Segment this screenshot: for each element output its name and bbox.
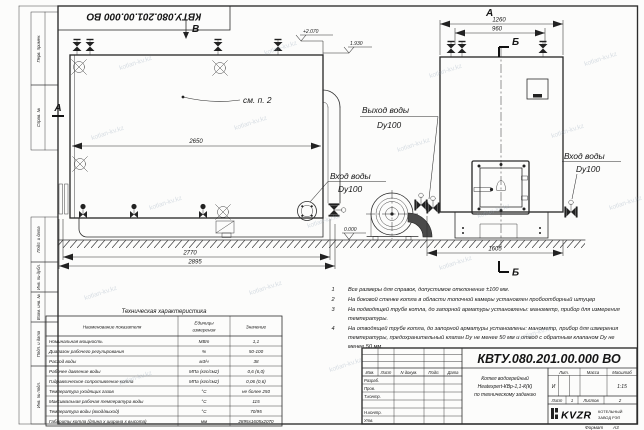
svg-text:мм: мм (201, 419, 208, 424)
svg-text:Dy100: Dy100 (338, 184, 363, 194)
air-valve-icon (447, 42, 456, 58)
svg-text:Вход воды: Вход воды (330, 171, 371, 181)
svg-text:Температура уходящих газов: Температура уходящих газов (49, 389, 114, 394)
svg-text:kotlan-kv.kz: kotlan-kv.kz (118, 55, 152, 72)
door-handle (474, 188, 491, 192)
svg-text:Выход воды: Выход воды (362, 105, 409, 115)
svg-text:Расход воды: Расход воды (49, 359, 77, 364)
note-text: температуры, предохранительный клапан Dу… (348, 334, 615, 341)
callout-note: см. п. 2 (243, 95, 272, 105)
svg-text:%: % (202, 349, 206, 354)
sheet-number: 1 (571, 398, 573, 403)
ground-line (58, 240, 585, 248)
note-number: 1 (331, 287, 334, 293)
svg-text:°С: °С (201, 409, 207, 414)
margin-label-perv-primen: Перв. примен. (36, 35, 41, 63)
format-value: А3 (612, 425, 619, 430)
scale-value: 1:15 (617, 384, 627, 390)
svg-text:Вход воды: Вход воды (564, 151, 605, 161)
tech-col-name: Наименование показателя (83, 325, 142, 330)
note-text: На боковой стенке котла в области топочн… (348, 296, 595, 303)
lifting-lug-mark-icon (216, 205, 231, 220)
elevation-top: +2.070 (296, 29, 333, 55)
section-b-bottom-marker: Б (499, 261, 519, 279)
sheets-label: Листов (582, 398, 599, 403)
top-stamp: КВТУ.080.201.00.000 ВО (58, 6, 230, 30)
company-name-line1: КОТЕЛЬНЫЙ (598, 409, 623, 414)
svg-text:kotlan-kv.kz: kotlan-kv.kz (328, 357, 362, 374)
svg-text:1.930: 1.930 (350, 41, 363, 47)
margin-label-podp-data-2: Подп. и дата (36, 330, 41, 357)
tech-table: Техническая характеристика Наименование … (46, 309, 282, 426)
svg-text:м3/ч: м3/ч (199, 359, 209, 364)
blower-duct-elbow (408, 213, 432, 237)
section-b-top-label: Б (512, 37, 519, 48)
svg-text:kotlan-kv.kz: kotlan-kv.kz (118, 370, 152, 387)
note-number: 3 (331, 307, 335, 313)
section-b-top-marker: Б (499, 37, 519, 57)
side-view: 1260 960 А Б Б 1605 Вход воды Dy100 (426, 8, 621, 279)
tech-table-title: Техническая характеристика (122, 309, 208, 315)
tech-row: Гидравлическое сопротивление котла МПа (… (49, 379, 266, 384)
svg-text:не более 250: не более 250 (242, 389, 270, 394)
svg-text:0,06 (0,6): 0,06 (0,6) (246, 379, 266, 384)
svg-text:kotlan-kv.kz: kotlan-kv.kz (233, 115, 267, 132)
svg-text:kotlan-kv.kz: kotlan-kv.kz (396, 137, 430, 154)
company-logo-text: KVZR (561, 410, 592, 422)
col-ndocum: N докум. (401, 370, 418, 375)
margin-label-vzam-inv: Взам. инв. № (36, 294, 41, 320)
col-podp: Подп. (428, 370, 439, 375)
drain-valve-icon (130, 204, 138, 218)
dim-front-shell-length: 2650 (188, 139, 203, 145)
drain-valve-icon (199, 204, 207, 218)
svg-text:Температура воды (вход/выход): Температура воды (вход/выход) (49, 409, 120, 414)
mass-header: Масса (587, 370, 600, 375)
format-label: Формат (585, 425, 603, 430)
tech-col-value: Значение (246, 325, 267, 330)
scale-header: Масштаб (612, 370, 632, 375)
col-list: Лист (380, 370, 392, 375)
sheet-label: Лист (551, 398, 563, 403)
litera-header: Лит. (558, 370, 569, 375)
note-text: Все размеры для справок, допустимое откл… (348, 287, 509, 293)
svg-text:Dy100: Dy100 (576, 164, 601, 174)
product-name-line: по техническому заданию (474, 392, 536, 398)
sig-tkontr: Т.контр. (364, 394, 381, 399)
dim-side-width-inner: 960 (492, 27, 503, 33)
svg-text:+2.070: +2.070 (303, 29, 319, 35)
svg-text:МВт: МВт (199, 339, 210, 344)
lifting-lug-mark-icon (73, 157, 88, 172)
sig-nkontr: Н.контр. (364, 410, 382, 415)
lifting-lug-mark-icon (213, 61, 228, 76)
side-base-frame (455, 212, 548, 238)
svg-text:kotlan-kv.kz: kotlan-kv.kz (148, 195, 182, 212)
tech-row: Рабочее давление воды МПа (кгс/см2) 0,6 … (49, 369, 265, 374)
sheets-total: 2 (618, 398, 622, 403)
note-number: 4 (331, 326, 334, 332)
boiler-drawing-canvas: КВТУ.080.201.00.000 ВО Перв. примен. Спр… (0, 0, 644, 430)
section-b-bottom-label: Б (512, 268, 519, 279)
svg-text:МПа (кгс/см2): МПа (кгс/см2) (189, 379, 219, 384)
svg-text:°С: °С (201, 399, 207, 404)
note-text: На подводящей трубе котла, до запорной а… (348, 306, 620, 313)
svg-text:0.000: 0.000 (344, 227, 357, 233)
margin-label-podp-data-1: Подп. и дата (36, 226, 41, 253)
svg-text:kotlan-kv.kz: kotlan-kv.kz (428, 63, 462, 80)
air-valve-icon (86, 40, 95, 56)
company-name-line2: ЗАВОД РЭП (598, 415, 620, 420)
doc-number: КВТУ.080.201.00.000 ВО (477, 352, 621, 366)
svg-text:kotlan-kv.kz: kotlan-kv.kz (550, 123, 584, 140)
tech-col-unit: Единицы (194, 321, 214, 326)
elevation-ground: 0.000 (342, 227, 366, 240)
svg-text:МПа (кгс/см2): МПа (кгс/см2) (189, 369, 219, 374)
view-b-marker: В (183, 20, 199, 39)
water-inlet-front-label: Вход воды Dy100 (310, 171, 386, 202)
duct-valve-icon (414, 193, 427, 210)
side-outlet-stub-valve-icon (426, 196, 439, 213)
notes-list: 1 Все размеры для справок, допустимое от… (330, 287, 619, 350)
svg-text:Габариты котла (длина х ширина: Габариты котла (длина х ширина х высота) (49, 419, 147, 424)
svg-text:Рабочее давление воды: Рабочее давление воды (49, 369, 101, 374)
view-a-title: А (485, 8, 493, 19)
svg-text:kotlan-kv.kz: kotlan-kv.kz (583, 51, 617, 68)
product-name-line: Котел водогрейный (481, 375, 529, 382)
air-valve-icon (73, 40, 82, 56)
note-text: температуры. (348, 316, 388, 322)
margin-label-inv-podl: Инв. № подл. (36, 382, 41, 408)
svg-text:0,6 (6,0): 0,6 (6,0) (247, 369, 265, 374)
svg-text:Диапазон рабочего регулировани: Диапазон рабочего регулирования (48, 349, 125, 354)
tech-row: Температура уходящих газов °С не более 2… (49, 389, 270, 394)
view-b-label: В (192, 24, 199, 35)
svg-text:kotlan-kv.kz: kotlan-kv.kz (90, 125, 124, 142)
drawing-sheet: КВТУ.080.201.00.000 ВО Перв. примен. Спр… (0, 0, 644, 430)
sig-prov: Пров. (364, 386, 375, 391)
tech-row: Габариты котла (длина х ширина х высота)… (49, 419, 274, 424)
svg-text:1,1: 1,1 (253, 339, 260, 344)
svg-text:kotlan-kv.kz: kotlan-kv.kz (248, 280, 282, 297)
top-stamp-number: КВТУ.080.201.00.000 ВО (86, 11, 201, 22)
svg-text:Номинальная мощность: Номинальная мощность (49, 339, 103, 344)
air-valve-icon (214, 40, 223, 56)
title-block: Изм. Лист N докум. Подп. Дата Разраб. Пр… (362, 348, 637, 424)
note-number: 2 (330, 297, 335, 303)
product-name-line: Heatexpert-КВр-1,1-К(К) (478, 384, 533, 390)
svg-text:50-100: 50-100 (249, 349, 264, 354)
svg-text:70/95: 70/95 (250, 409, 262, 414)
air-valve-icon (458, 42, 467, 58)
svg-text:2895х1605х2070: 2895х1605х2070 (237, 419, 274, 424)
format-note: Формат А3 (585, 425, 619, 430)
company-logo: KVZR КОТЕЛЬНЫЙ ЗАВОД РЭП (551, 408, 623, 422)
litera-value: И (552, 384, 556, 390)
svg-text:kotlan-kv.kz: kotlan-kv.kz (83, 285, 117, 302)
tech-row: Диапазон рабочего регулирования % 50-100 (48, 349, 264, 354)
svg-text:kotlan-kv.kz: kotlan-kv.kz (438, 255, 472, 272)
svg-text:115: 115 (252, 399, 260, 404)
tech-row: Номинальная мощность МВт 1,1 (49, 339, 260, 344)
tech-row: Расход воды м3/ч 38 (49, 359, 259, 364)
margin-label-inv-dubl: Инв. № дубл. (36, 264, 41, 290)
side-inlet-stub-valve-icon (564, 200, 577, 217)
col-izm: Изм. (366, 370, 375, 375)
elevation-shell-top: 1.930 (323, 41, 372, 53)
svg-text:Dy100: Dy100 (377, 120, 402, 130)
tech-row: Максимальная рабочая температура воды °С… (49, 399, 260, 404)
col-data: Дата (446, 370, 459, 375)
sig-utv: Утв. (364, 418, 374, 423)
tech-col-unit2: измерения (193, 328, 217, 333)
note-text: менее 50 мм. (348, 344, 383, 350)
svg-text:°С: °С (201, 389, 207, 394)
dim-side-width-overall: 1260 (492, 18, 506, 24)
air-valve-icon (539, 42, 548, 58)
margin-label-sprav: Справ. № (36, 108, 41, 127)
section-a-label: А (53, 103, 61, 114)
water-inlet-side-label: Вход воды Dy100 (562, 151, 621, 199)
drain-valve-icon (79, 204, 87, 218)
blower (366, 190, 432, 240)
dim-front-overall: 2895 (187, 260, 202, 266)
svg-text:38: 38 (253, 359, 259, 364)
sig-razrab: Разраб. (364, 378, 379, 383)
lifting-lug-mark-icon (72, 60, 87, 75)
svg-text:Максимальная рабочая температу: Максимальная рабочая температура воды (49, 399, 144, 404)
dim-front-length: 2770 (182, 251, 197, 257)
note-text: На отводящей трубе котла, до запорной ар… (348, 325, 618, 332)
